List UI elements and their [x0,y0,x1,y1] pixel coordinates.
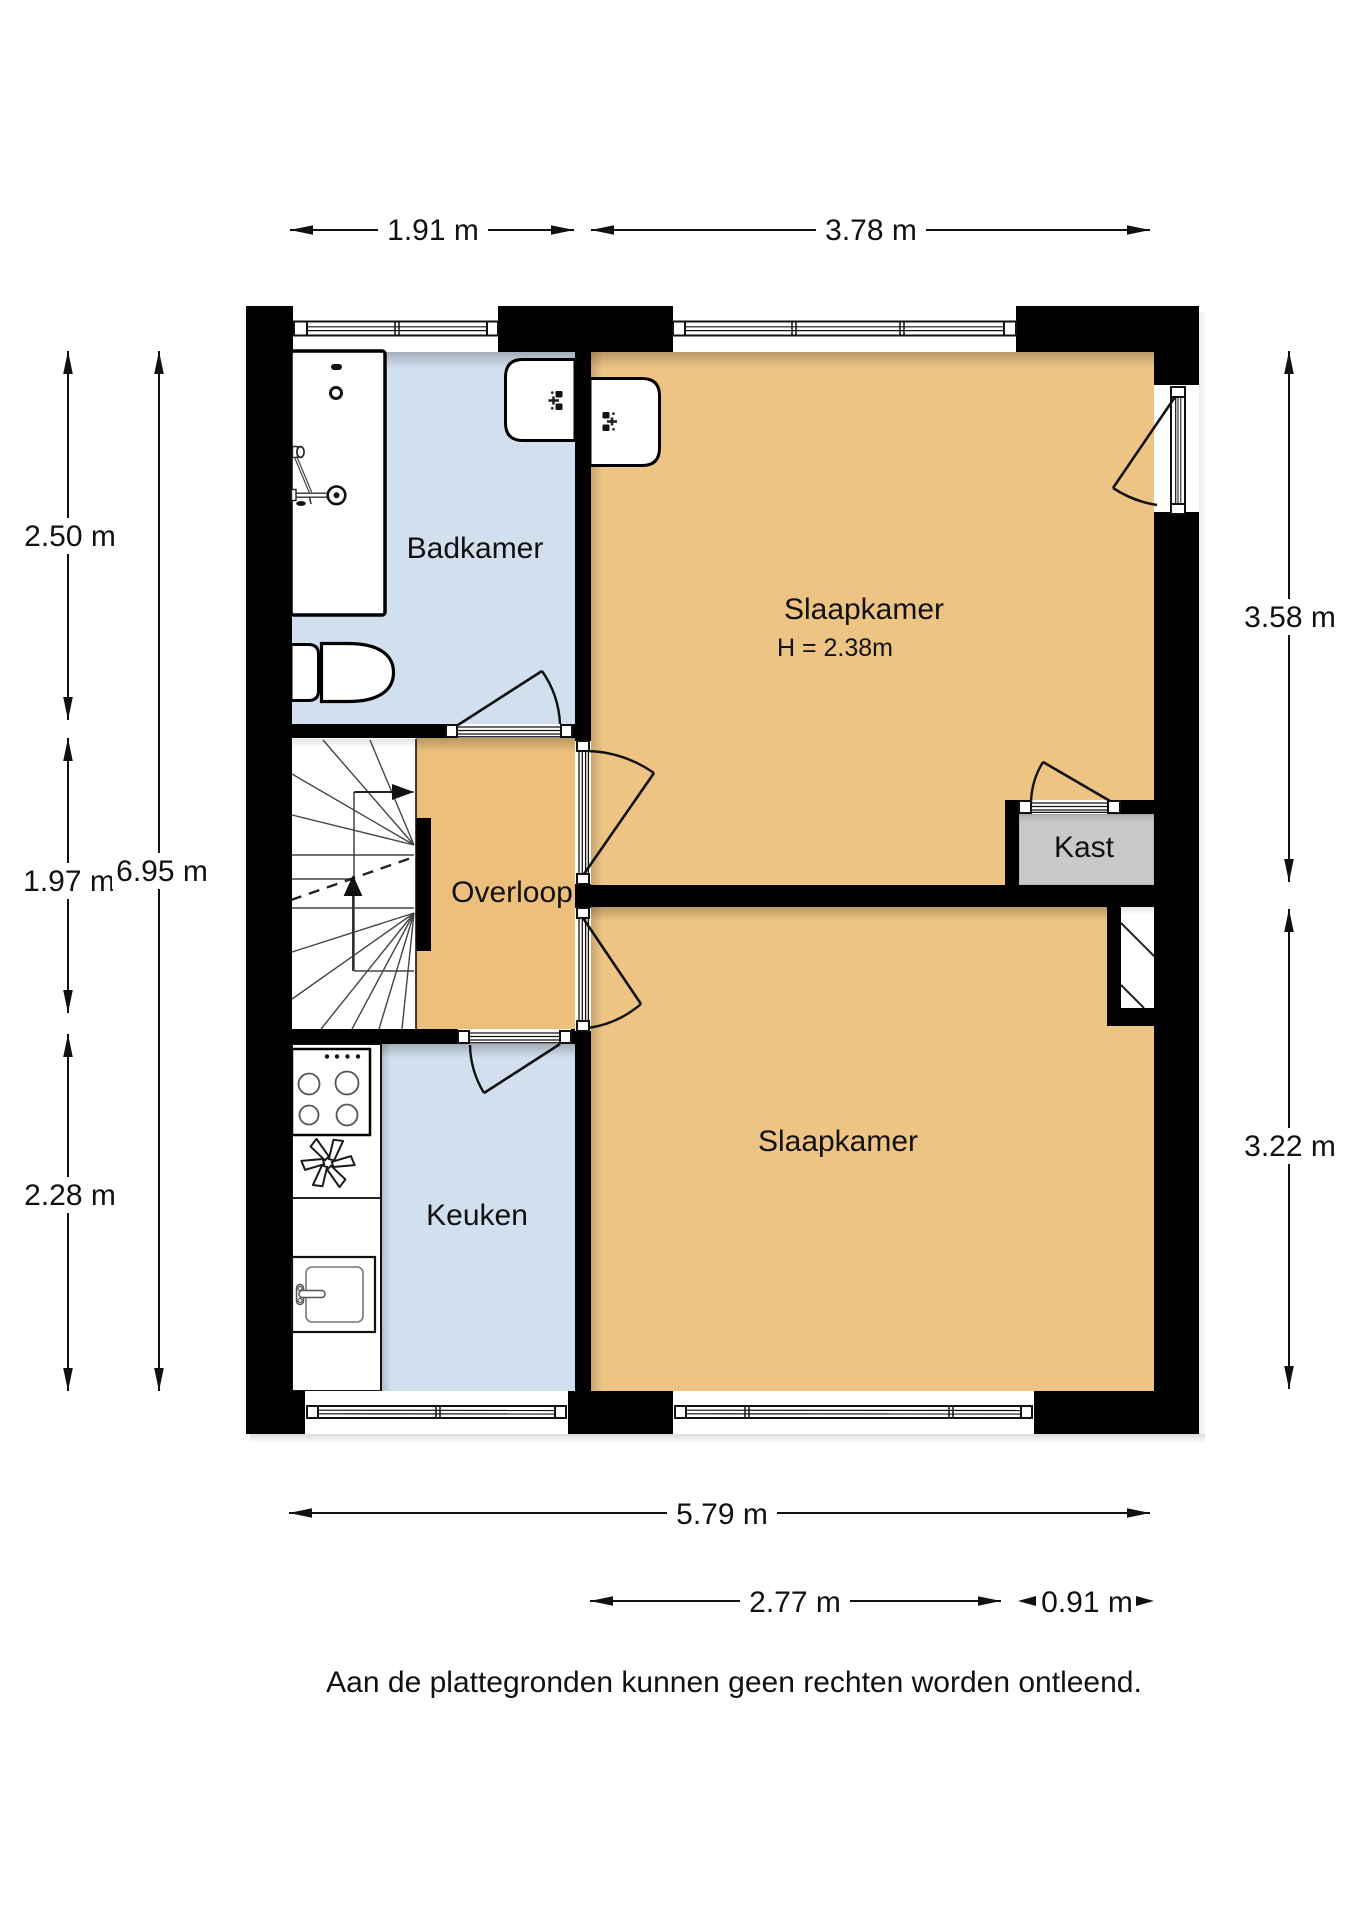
svg-text:H = 2.38m: H = 2.38m [777,634,893,662]
svg-text:0.91 m: 0.91 m [1041,1586,1133,1619]
svg-text:Slaapkamer: Slaapkamer [784,593,944,626]
svg-text:2.77 m: 2.77 m [749,1586,841,1619]
svg-text:Aan de plattegronden kunnen ge: Aan de plattegronden kunnen geen rechten… [326,1666,1142,1699]
svg-text:Badkamer: Badkamer [407,532,544,565]
svg-text:1.91 m: 1.91 m [387,214,479,247]
svg-text:Overloop: Overloop [451,876,573,909]
svg-text:2.28 m: 2.28 m [24,1179,116,1212]
svg-text:3.58 m: 3.58 m [1244,601,1336,634]
svg-text:Kast: Kast [1054,831,1115,864]
svg-text:6.95 m: 6.95 m [116,855,208,888]
svg-text:5.79 m: 5.79 m [676,1498,768,1531]
svg-text:3.22 m: 3.22 m [1244,1130,1336,1163]
svg-text:1.97 m: 1.97 m [23,865,115,898]
svg-text:Keuken: Keuken [426,1199,528,1232]
svg-text:2.50 m: 2.50 m [24,520,116,553]
svg-text:Slaapkamer: Slaapkamer [758,1125,918,1158]
svg-text:3.78 m: 3.78 m [825,214,917,247]
